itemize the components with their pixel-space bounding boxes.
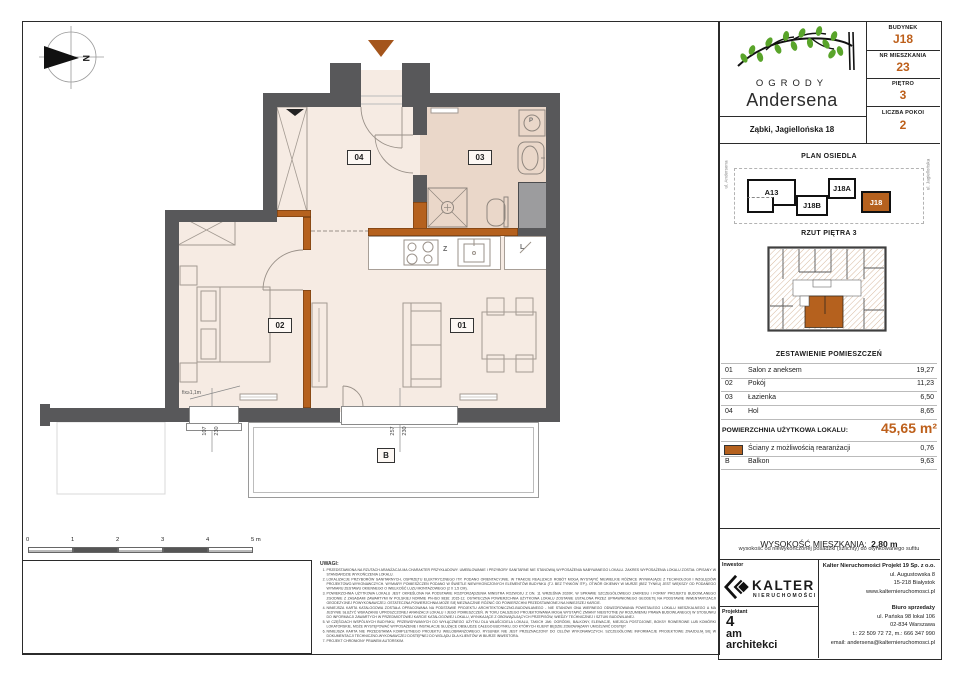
neighbour-wall [40,404,50,426]
wall [330,63,361,107]
designer-logo: 4 am architekci [726,615,777,650]
sales-office-block: Biuro sprzedaży ul. Pańska 98 lokal 106 … [822,604,935,647]
developer-addr1: ul. Augustowska 8 [822,571,935,580]
notes-block: UWAGI: PRZEDSTAWIONA NA RZUTACH ARANŻACJ… [320,561,716,651]
project-address: Ząbki, Jagiellońska 18 [718,125,866,134]
field-pokoi-value: 2 [866,118,940,132]
floor-plan-thumbnail [767,246,887,332]
room-name: Hol [748,408,759,415]
note-item: PROJEKT CHRONIONY PRAWEM AUTORSKIM. [327,639,717,644]
highlighted-apartment [805,296,843,328]
divider [818,559,819,658]
sink-label: Z [443,246,447,253]
field-budynek-label: BUDYNEK [866,25,940,31]
divider [866,78,940,79]
street-label-jagiellonska: ul. Jagiellońska [926,152,931,198]
height-note: wysokość od niewykończonej posadzki (szl… [718,546,940,552]
divider [866,50,940,51]
door-swings [263,96,413,406]
sofa [403,303,441,387]
notes-title: UWAGI: [320,561,716,567]
room-name: Balkon [748,458,769,465]
wall [165,210,179,422]
wall [237,408,340,422]
room-label-balcony: B [377,448,395,463]
site-plan-title: PLAN OSIEDLA [718,153,940,160]
usable-area-value: 45,65 m² [881,420,937,436]
dim-window-left-width: 107 [202,422,208,440]
developer-www: www.kalternieruchomosci.pl [822,588,935,597]
reconfig-wall [277,210,311,217]
kalter-logo-icon [724,574,750,600]
room-area: 11,23 [917,380,934,387]
window-balcony-door [341,406,458,425]
floor-thumb-title: RZUT PIĘTRA 3 [718,230,940,237]
sales-email: email: andersena@kalternieruchomosci.pl [822,639,935,648]
room-area: 6,50 [920,394,934,401]
reconfig-wall [368,228,518,236]
room-no: 03 [725,394,733,401]
divider [718,606,818,607]
kitchen-appliances [404,239,531,266]
room-area: 9,63 [920,458,934,465]
room-name: Pokój [748,380,766,387]
investor-name: KALTER [752,578,815,593]
field-pokoi-label: LICZBA POKOI [866,110,940,116]
room-no: 04 [725,408,733,415]
sales-addr2: 02-834 Warszawa [822,621,935,630]
room-name: Salon z aneksem [748,367,802,374]
legend-box [22,560,312,654]
note-item: LOKALIZACJE PRZYBORÓW SANITARNYCH, OSPRZ… [327,578,717,592]
table-row: 03 Łazienka 6,50 [721,391,937,406]
dim-window-left-height: 230 [214,422,220,440]
table-row: 02 Pokój 11,23 [721,377,937,392]
fix-glazing-note: fix≥1,1m [182,390,201,396]
room-label-living: 01 [450,318,474,333]
building-j18-highlighted: J18 [861,191,891,213]
apartment-card-sheet: N [0,0,960,678]
wall [263,93,277,212]
developer-name: Kalter Nieruchomości Projekt 19 Sp. z o.… [822,562,935,571]
field-pietro-label: PIĘTRO [866,81,940,87]
reconfig-wall [303,290,311,408]
divider [866,21,867,143]
fridge-label: L [520,244,524,251]
divider [866,106,940,107]
washer-label: P [529,118,533,124]
wall [546,93,560,422]
wall [165,210,277,222]
wall [402,63,430,107]
room-label-bathroom: 03 [468,150,492,165]
developer-addr2: 15-218 Białystok [822,579,935,588]
brand-branch-illustration [736,24,858,74]
note-item: PRZEDSTAWIONA NA RZUTACH ARANŻACJA MA CH… [327,568,717,577]
building-j18a: J18A [828,178,856,199]
rooms-table-title: ZESTAWIENIE POMIESZCZEŃ [718,351,940,358]
wall [457,408,560,422]
wall [413,175,427,204]
wall [413,107,427,135]
table-row: 04 Hol 8,65 [721,405,937,420]
sales-addr1: ul. Pańska 98 lokal 106 [822,613,935,622]
notes-list: PRZEDSTAWIONA NA RZUTACH ARANŻACJA MA CH… [320,568,716,644]
field-pietro-value: 3 [866,88,940,102]
field-nr-label: NR MIESZKANIA [866,53,940,59]
field-budynek-value: J18 [866,32,940,46]
note-item: POWIERZCHNIA UŻYTKOWA LOKALU JEST OKREŚL… [327,592,717,606]
neighbour-balcony-outline [57,422,165,494]
reconfig-wall [303,217,311,250]
room-label-hall: 04 [347,150,371,165]
dining-set [482,298,536,372]
note-item: NINIEJSZA KARTA NIE PRZEDSTAWIA KOMPLETN… [327,630,717,639]
sales-office-label: Biuro sprzedaży [822,604,935,613]
neighbour-wall [48,408,165,422]
wall [518,228,546,236]
building-a13-annex [747,197,774,213]
divider [718,116,866,117]
note-item: NINIEJSZA KARTA KATALOGOWA ZOSTAŁA OPRAC… [327,606,717,620]
room-name: Ściany z możliwością rearanżacji [748,445,850,452]
designer-line1: 4 [726,615,777,629]
field-nr-value: 23 [866,60,940,74]
dim-window-right-width: 257 [390,422,396,440]
usable-area-label: POWIERZCHNIA UŻYTKOWA LOKALU: [722,427,848,434]
apartment-board-icon [286,109,304,116]
bed [180,266,270,382]
designer-line3: architekci [726,640,777,650]
north-label: N [81,55,91,62]
brand-name-bottom: Andersena [718,90,866,111]
dim-window-right-height: 230 [402,422,408,440]
divider [718,528,940,529]
room-no: 01 [725,367,733,374]
living-shelf [312,303,327,387]
brand-name-top: OGRODY [718,78,866,89]
entrance-marker-icon [368,40,394,57]
room-area: 8,65 [920,408,934,415]
wall [263,93,330,107]
sales-phone: t.: 22 509 72 72, m.: 666 347 990 [822,630,935,639]
table-row-balcony: B Balkon 9,63 [721,455,937,470]
room-no: B [725,458,730,465]
developer-contact-block: Kalter Nieruchomości Projekt 19 Sp. z o.… [822,562,935,597]
investor-label: Inwestor [722,562,743,568]
reconfig-swatch [724,445,743,455]
note-item: W CZĘŚCIACH WSPÓLNYCH BUDYNKU, PRZEWIDYW… [327,620,717,629]
room-name: Łazienka [748,394,776,401]
room-area: 19,27 [916,367,934,374]
room-label-bedroom: 02 [268,318,292,333]
investor-subname: nieruchomości [753,593,817,599]
bathroom-fixtures [428,110,545,227]
room-area: 0,76 [920,445,934,452]
wall [430,93,546,107]
compass-icon: N [39,26,104,89]
street-label-andersena: ul. Andersena [724,152,729,198]
divider [718,143,940,144]
room-no: 02 [725,380,733,387]
building-j18b: J18B [796,195,828,216]
divider [718,559,940,560]
